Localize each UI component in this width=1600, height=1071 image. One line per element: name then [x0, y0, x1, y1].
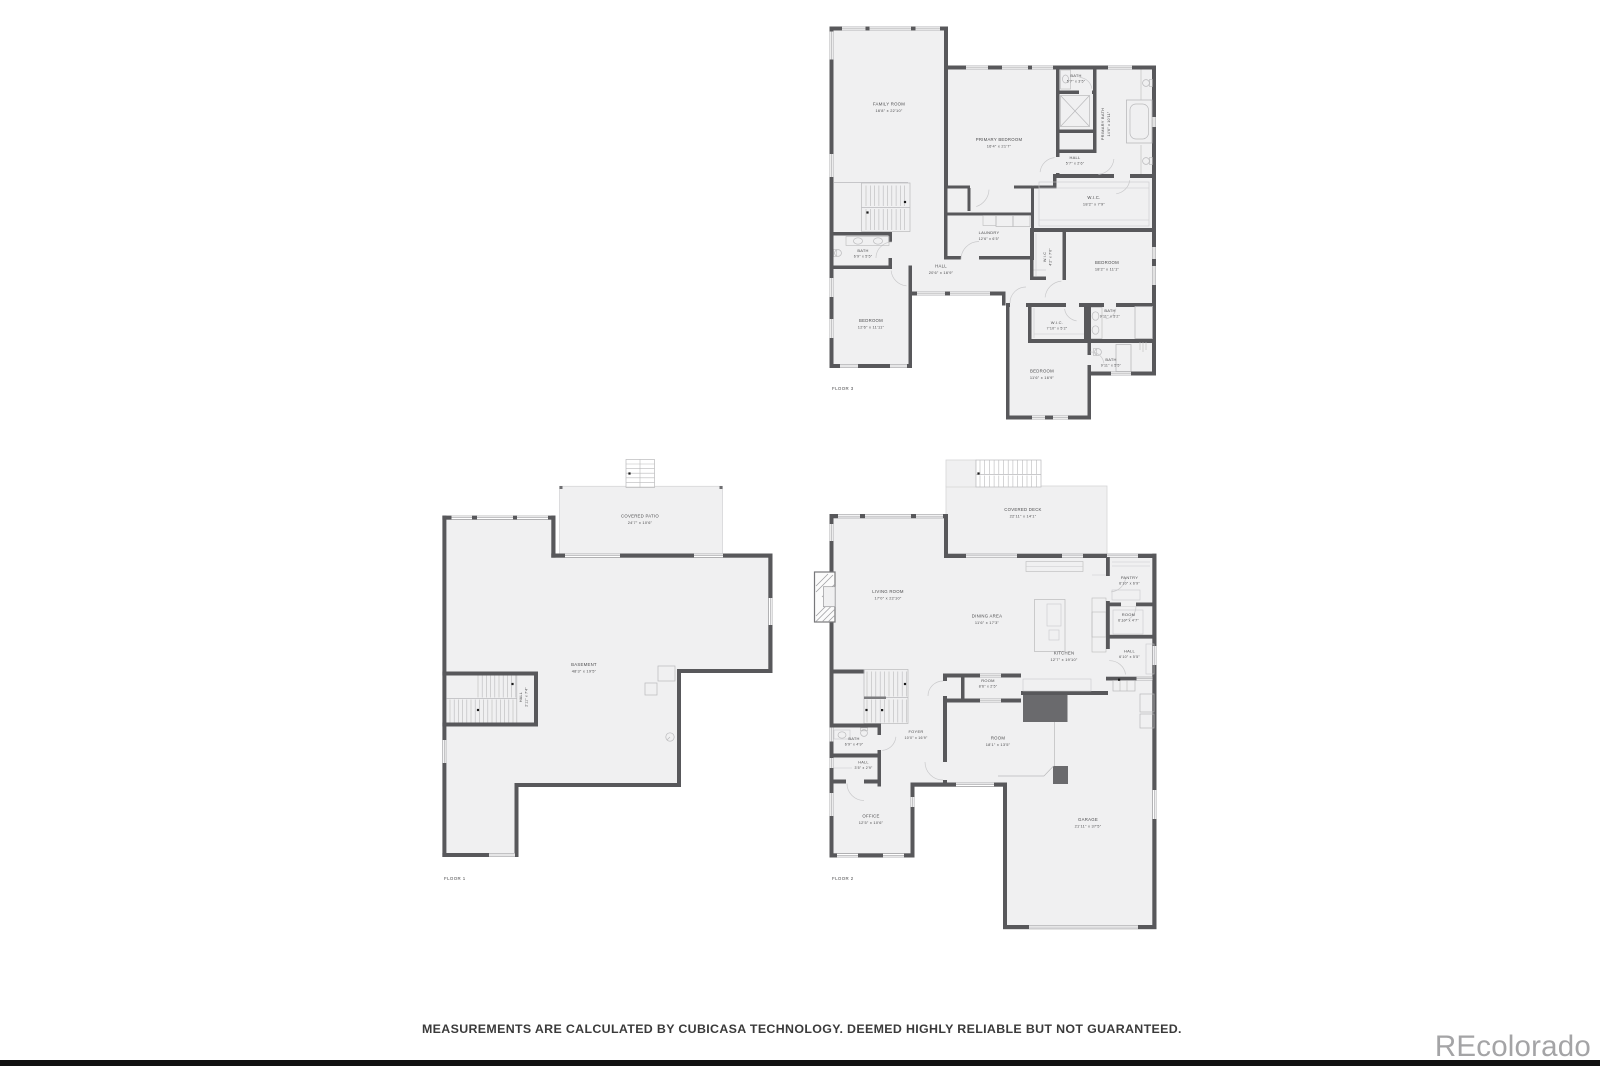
svg-text:FAMILY ROOM: FAMILY ROOM: [873, 102, 905, 107]
svg-text:MEASUREMENTS ARE CALCULATED BY: MEASUREMENTS ARE CALCULATED BY CUBICASA …: [422, 1022, 1182, 1036]
svg-text:ROOM: ROOM: [981, 678, 994, 683]
svg-text:BEDROOM: BEDROOM: [1030, 369, 1054, 374]
svg-text:W.I.C.: W.I.C.: [1051, 320, 1063, 325]
svg-text:HALL: HALL: [1124, 649, 1136, 654]
svg-text:PRIMARY BEDROOM: PRIMARY BEDROOM: [976, 137, 1023, 142]
svg-text:6'9" x 5'5": 6'9" x 5'5": [854, 255, 873, 259]
svg-text:9'11" x 5'5": 9'11" x 5'5": [1101, 364, 1122, 368]
svg-text:18'1" x 13'5": 18'1" x 13'5": [986, 742, 1011, 747]
svg-text:BEDROOM: BEDROOM: [859, 318, 883, 323]
svg-text:FLOOR 2: FLOOR 2: [832, 876, 854, 881]
svg-text:BEDROOM: BEDROOM: [1095, 260, 1119, 265]
svg-text:PRIMARY BATH: PRIMARY BATH: [1100, 108, 1105, 141]
svg-text:REcolorado: REcolorado: [1435, 1030, 1591, 1063]
svg-text:17'0" x 22'10": 17'0" x 22'10": [874, 596, 901, 601]
svg-text:BATH: BATH: [1105, 357, 1116, 362]
svg-text:11'6" x 17'3": 11'6" x 17'3": [975, 620, 1000, 625]
svg-text:4'2" x 7'6": 4'2" x 7'6": [1049, 248, 1053, 266]
svg-text:21'11" x 37'5": 21'11" x 37'5": [1075, 824, 1102, 829]
svg-text:48'3" x 19'5": 48'3" x 19'5": [572, 669, 597, 674]
svg-text:16'8" x 22'10": 16'8" x 22'10": [875, 108, 902, 113]
svg-text:5'7" x 2'6": 5'7" x 2'6": [1066, 162, 1085, 166]
svg-text:10'0" x 16'9": 10'0" x 16'9": [905, 736, 928, 740]
svg-text:12'5" x 10'6": 12'5" x 10'6": [859, 820, 884, 825]
svg-text:COVERED DECK: COVERED DECK: [1004, 507, 1041, 512]
svg-text:HALL: HALL: [935, 264, 947, 269]
svg-text:FLOOR 3: FLOOR 3: [832, 386, 854, 391]
svg-text:11'6" x 16'9": 11'6" x 16'9": [1030, 375, 1055, 380]
svg-text:9'11" x 5'2": 9'11" x 5'2": [1100, 315, 1121, 319]
svg-text:3'5" x 2'9": 3'5" x 2'9": [854, 766, 873, 770]
svg-text:W.I.C: W.I.C: [1043, 252, 1047, 262]
svg-text:ROOM: ROOM: [991, 736, 1006, 741]
svg-text:ROOM: ROOM: [1122, 612, 1135, 617]
svg-text:5'7" x 3'5": 5'7" x 3'5": [1067, 80, 1086, 84]
svg-text:BASEMENT: BASEMENT: [571, 662, 597, 667]
svg-text:24'7" x 10'6": 24'7" x 10'6": [628, 520, 653, 525]
svg-text:BATH: BATH: [857, 248, 868, 253]
svg-text:HALL: HALL: [519, 692, 523, 702]
svg-text:7'10" x 5'2": 7'10" x 5'2": [1047, 327, 1068, 331]
svg-text:W.I.C.: W.I.C.: [1087, 195, 1100, 200]
svg-text:12'7" x 19'10": 12'7" x 19'10": [1050, 657, 1077, 662]
svg-text:20'6" x 16'9": 20'6" x 16'9": [929, 270, 954, 275]
svg-text:6'10" x 6'9": 6'10" x 6'9": [1119, 582, 1140, 586]
svg-text:8'6" x 2'5": 8'6" x 2'5": [979, 685, 998, 689]
svg-text:2'11" x 7'4": 2'11" x 7'4": [525, 687, 529, 707]
svg-text:DINING AREA: DINING AREA: [972, 614, 1002, 619]
svg-text:16'4" x 21'7": 16'4" x 21'7": [987, 144, 1012, 149]
svg-text:PANTRY: PANTRY: [1121, 575, 1138, 580]
svg-text:12'6" x 6'5": 12'6" x 6'5": [979, 237, 1000, 241]
svg-text:18'2" x 7'9": 18'2" x 7'9": [1083, 202, 1106, 207]
svg-text:COVERED PATIO: COVERED PATIO: [621, 514, 659, 519]
svg-text:LIVING ROOM: LIVING ROOM: [872, 589, 904, 594]
svg-text:HALL: HALL: [1069, 155, 1081, 160]
svg-text:KITCHEN: KITCHEN: [1054, 651, 1075, 656]
svg-text:6'10" x 5'5": 6'10" x 5'5": [1119, 655, 1140, 659]
svg-text:22'11" x 14'1": 22'11" x 14'1": [1010, 514, 1037, 519]
svg-text:6'9" x 4'9": 6'9" x 4'9": [845, 743, 864, 747]
svg-text:BATH: BATH: [1104, 308, 1115, 313]
svg-text:FOYER: FOYER: [908, 729, 923, 734]
svg-text:6'10" x 4'7": 6'10" x 4'7": [1118, 619, 1139, 623]
svg-text:12'6" x 11'11": 12'6" x 11'11": [858, 325, 885, 330]
svg-text:14'6" x 10'11": 14'6" x 10'11": [1107, 111, 1111, 136]
svg-text:HALL: HALL: [858, 761, 869, 765]
svg-text:BATH: BATH: [848, 736, 859, 741]
svg-text:GARAGE: GARAGE: [1078, 817, 1098, 822]
svg-text:18'2" x 11'1": 18'2" x 11'1": [1095, 267, 1120, 272]
svg-text:BATH: BATH: [1070, 73, 1081, 78]
svg-text:LAUNDRY: LAUNDRY: [979, 230, 1000, 235]
svg-text:FLOOR 1: FLOOR 1: [444, 876, 466, 881]
svg-text:OFFICE: OFFICE: [862, 814, 879, 819]
